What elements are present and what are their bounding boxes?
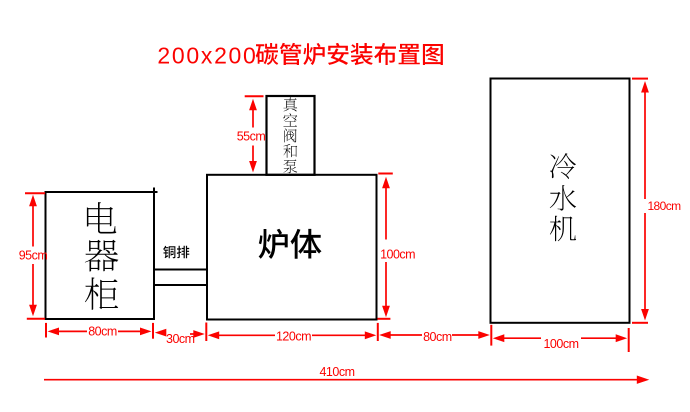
svg-text:100cm: 100cm: [543, 337, 578, 351]
svg-text:410cm: 410cm: [319, 365, 354, 379]
svg-text:30cm: 30cm: [166, 332, 195, 346]
svg-text:120cm: 120cm: [276, 329, 311, 343]
svg-text:180cm: 180cm: [647, 199, 681, 213]
svg-text:95cm: 95cm: [19, 248, 48, 262]
svg-text:200x200: 200x200: [157, 42, 257, 68]
svg-text:100cm: 100cm: [380, 247, 415, 261]
svg-text:55cm: 55cm: [237, 130, 266, 144]
svg-text:80cm: 80cm: [88, 325, 117, 339]
svg-text:80cm: 80cm: [423, 330, 452, 344]
